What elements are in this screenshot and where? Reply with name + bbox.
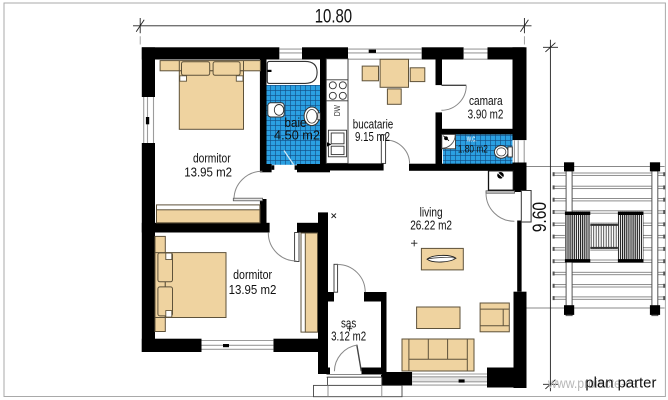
svg-text:9.60: 9.60	[530, 202, 551, 232]
svg-text:13.95 m2: 13.95 m2	[184, 165, 232, 180]
svg-text:10.80: 10.80	[315, 6, 352, 27]
svg-text:4.50 m2: 4.50 m2	[274, 128, 320, 143]
svg-text:1.80 m2: 1.80 m2	[458, 144, 488, 156]
svg-text:3.12 m2: 3.12 m2	[331, 328, 366, 343]
svg-text:w.c.: w.c.	[466, 133, 477, 143]
svg-text:plan parter: plan parter	[585, 375, 656, 392]
svg-text:DW: DW	[333, 105, 342, 116]
svg-text:26.22 m2: 26.22 m2	[410, 217, 452, 232]
svg-text:dormitor: dormitor	[233, 267, 272, 282]
svg-text:3.90 m2: 3.90 m2	[468, 107, 504, 122]
svg-text:9.15 m2: 9.15 m2	[355, 129, 390, 144]
svg-text:dormitor: dormitor	[193, 151, 231, 166]
svg-text:13.95 m2: 13.95 m2	[229, 282, 277, 297]
